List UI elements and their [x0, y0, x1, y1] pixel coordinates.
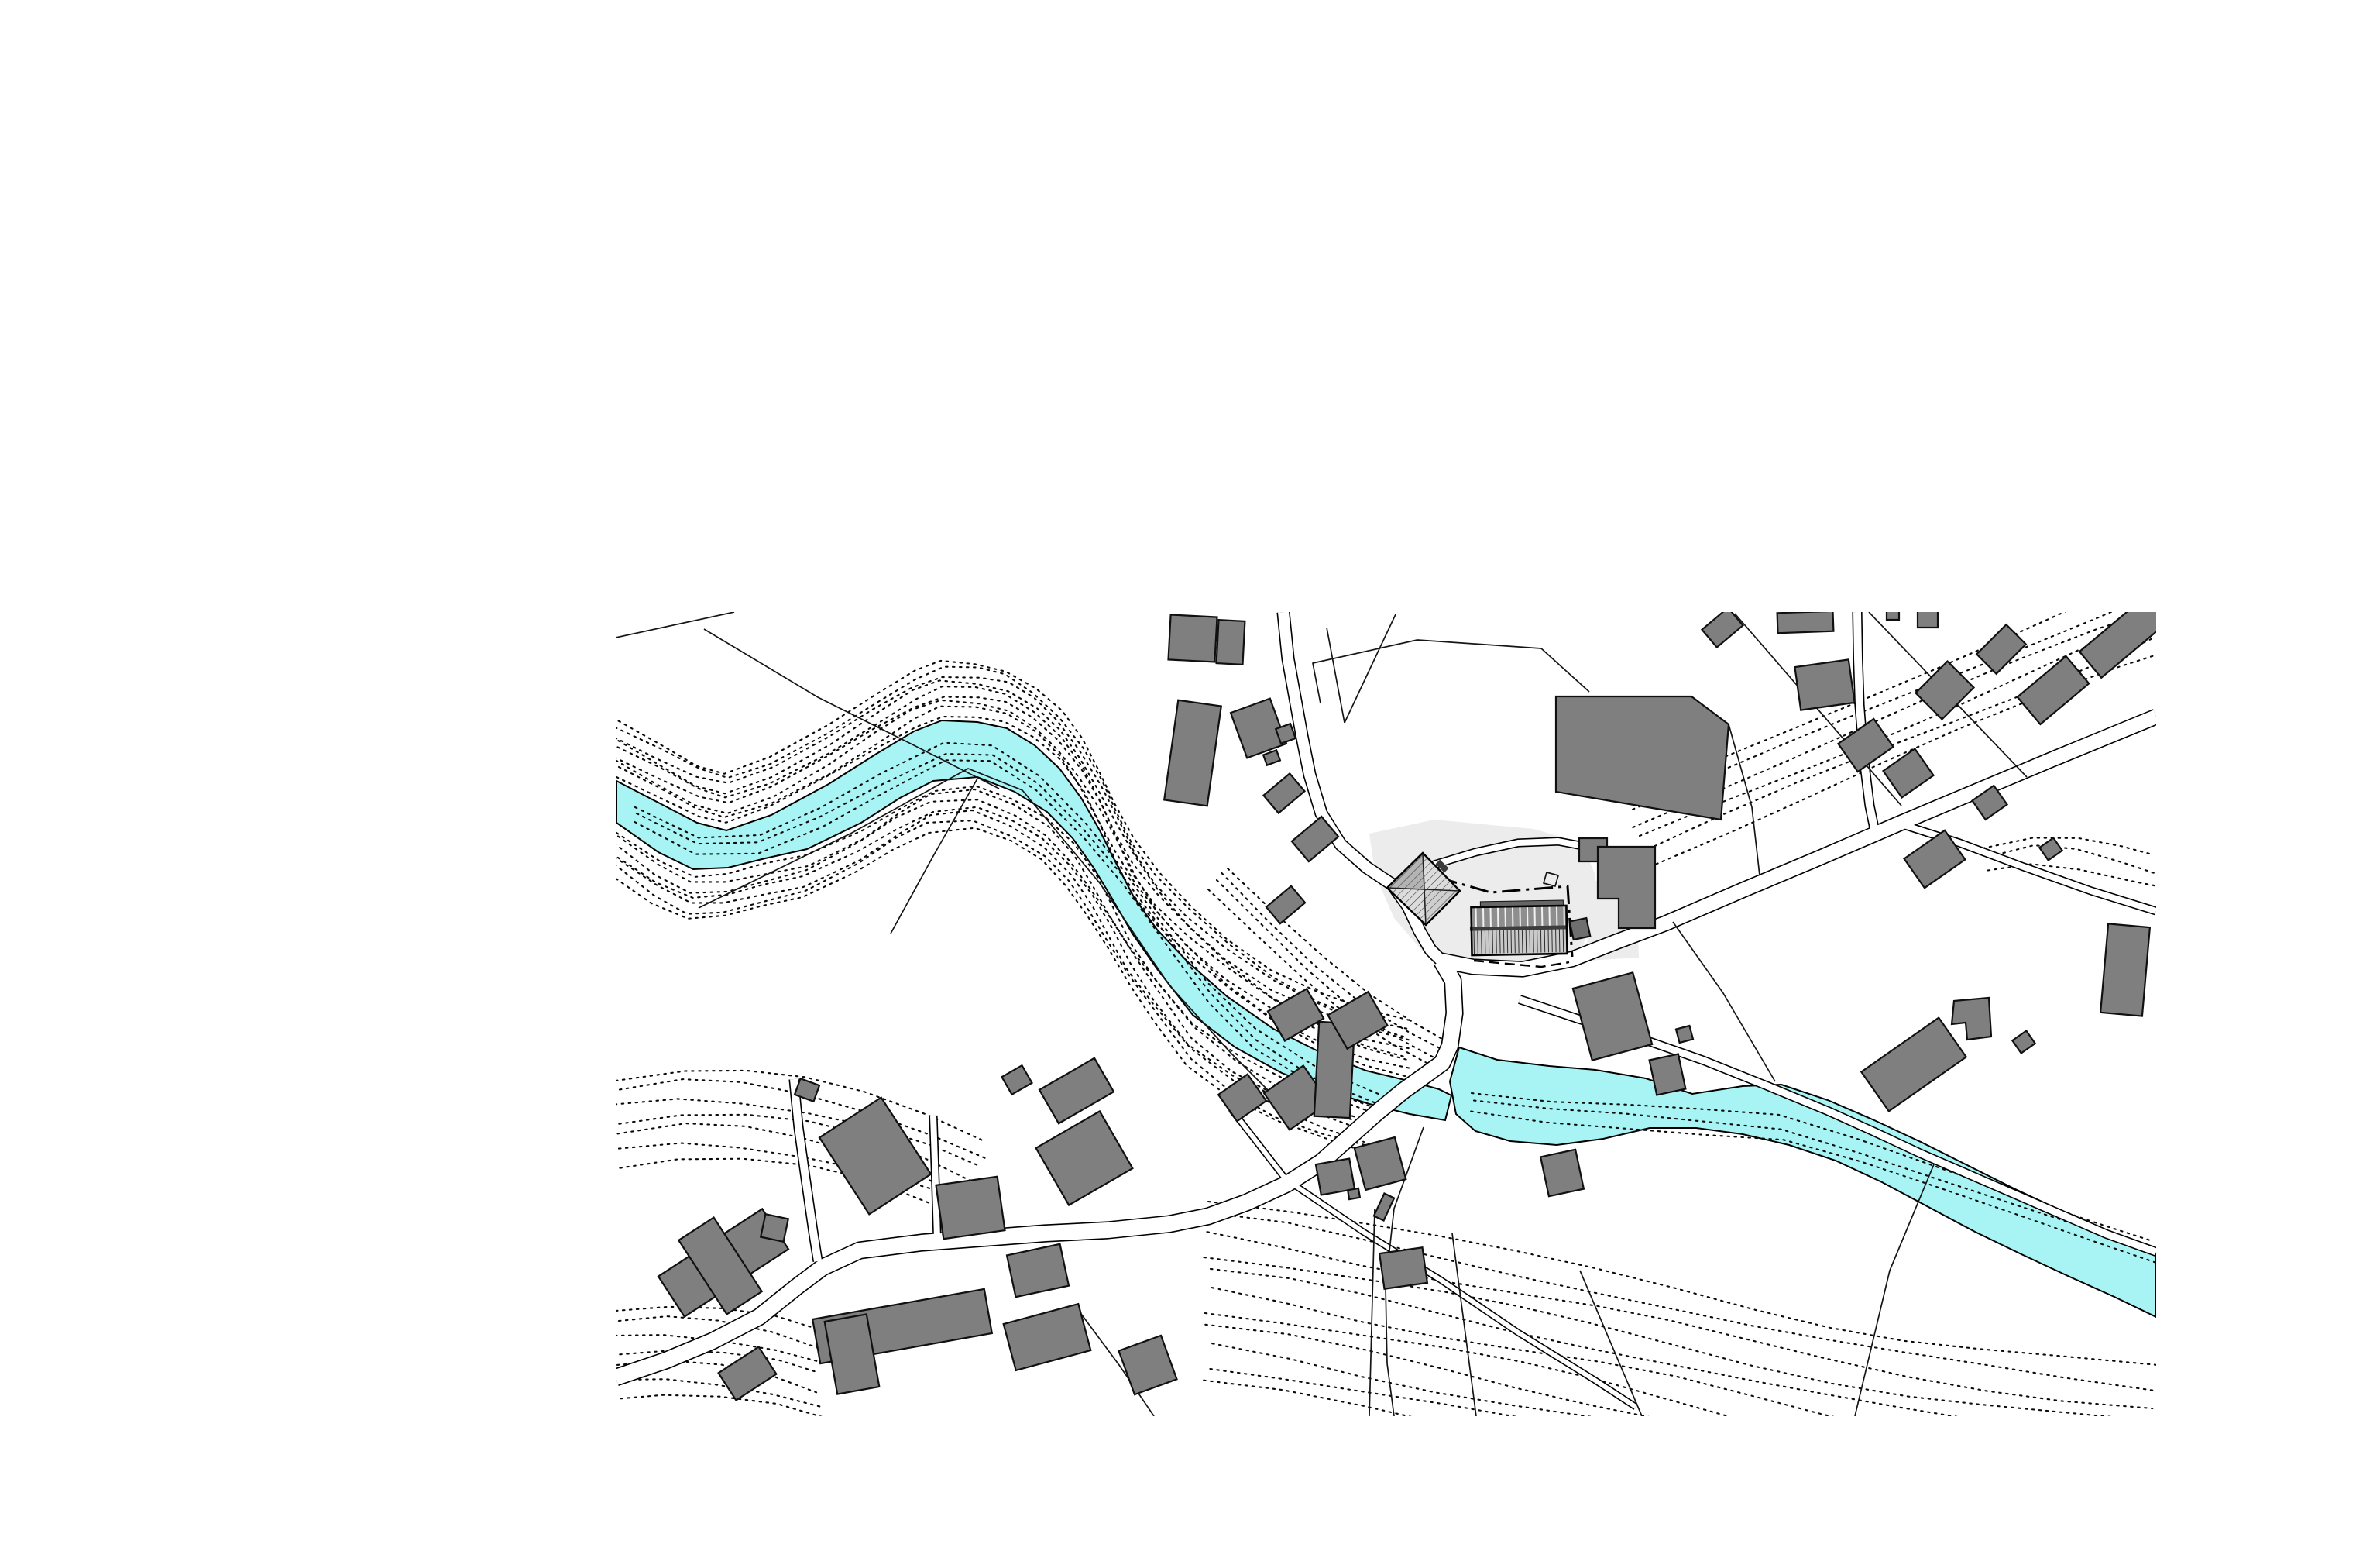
building-footprint [1952, 998, 1991, 1040]
building-footprint [1355, 1137, 1406, 1190]
contour-line [1983, 838, 2152, 855]
building-footprint [1702, 607, 1743, 647]
building-footprint [1164, 700, 1221, 806]
building-footprint [1887, 610, 1899, 620]
parcel-boundary-line [1735, 614, 1901, 806]
site-plan-map [0, 0, 2380, 1568]
building-footprint [1266, 886, 1305, 923]
building-footprint [1039, 1058, 1114, 1123]
building-footprint [719, 1347, 777, 1401]
roof-rib [1522, 930, 1523, 953]
building-footprint [1374, 1194, 1394, 1221]
project-building-ribbed-roof [1469, 900, 1568, 955]
building-footprint [2100, 923, 2150, 1016]
parcel-boundary-line [1313, 640, 1589, 703]
building-footprint [1264, 773, 1305, 813]
contour-line [1212, 1288, 2158, 1464]
building-footprint [1861, 1018, 1966, 1112]
building-footprint [1263, 750, 1280, 765]
roof-rib [1530, 930, 1530, 953]
building-footprint [1918, 610, 1938, 628]
building-footprint [1217, 620, 1245, 665]
roof-rib [1489, 930, 1489, 954]
contour-line [1205, 1313, 2152, 1477]
parcel-boundary-line [1452, 1233, 1476, 1416]
roof-rib [1548, 929, 1549, 952]
roof-rib [1519, 930, 1520, 953]
roof-rib [1511, 930, 1512, 953]
building-footprint [1884, 749, 1934, 798]
roof-rib [1533, 930, 1534, 953]
parcel-boundary-line [1345, 614, 1396, 723]
building-footprint [2039, 838, 2062, 861]
building-footprint [1004, 1304, 1091, 1370]
building-footprint [1573, 972, 1652, 1060]
roof-rib [1507, 930, 1508, 953]
roof-rib [1552, 929, 1553, 952]
building-footprint [1007, 1244, 1069, 1297]
contour-line [1205, 1325, 2156, 1503]
building-footprint [1169, 615, 1217, 662]
roof-rib [1485, 930, 1485, 954]
building-footprint [1976, 624, 2026, 674]
building-footprint [1540, 1150, 1584, 1196]
parcel-boundary-line [1729, 724, 1760, 875]
roof-rib [1540, 930, 1541, 953]
building-footprint [1838, 719, 1893, 772]
church-lane [794, 1079, 818, 1261]
building-footprint [1002, 1065, 1032, 1095]
building-footprint [1570, 918, 1591, 940]
contour-line [1212, 1343, 2161, 1520]
roof-rib [1537, 930, 1538, 953]
parcel-boundary-line [616, 612, 734, 638]
roof-rib [1478, 930, 1478, 954]
contour-line [1204, 1257, 2153, 1421]
roof-rib [1492, 930, 1493, 954]
roof-rib [1500, 930, 1501, 953]
parcel-boundary-line [1327, 628, 1345, 723]
building-footprint [1794, 659, 1854, 710]
roof-rib [1474, 930, 1475, 954]
building-footprint [1348, 1188, 1360, 1199]
building-footprint [936, 1177, 1005, 1239]
roof-rib [1496, 930, 1497, 954]
village-lane [933, 1116, 937, 1238]
roof-rib [1526, 930, 1527, 953]
building-footprint [1036, 1111, 1133, 1205]
building-footprint [1676, 1026, 1693, 1043]
building-footprint [1650, 1054, 1686, 1095]
roof-rib [1559, 929, 1560, 952]
building-footprint [2018, 656, 2089, 724]
roof-rib [1515, 930, 1516, 953]
map-content [610, 583, 2168, 1559]
roof-rib [1563, 929, 1564, 952]
contour-line [1211, 1269, 2161, 1447]
roof-rib [1544, 929, 1545, 952]
building-footprint [1777, 611, 1834, 633]
contour-line [1210, 1369, 2155, 1532]
roof-rib [1556, 929, 1557, 952]
building-footprint [1119, 1336, 1177, 1394]
building-footprint [761, 1214, 788, 1242]
document-page [0, 0, 2380, 1568]
contour-line [1207, 1232, 2153, 1408]
contour-line [1204, 1381, 2152, 1559]
roof-rib [1482, 930, 1482, 954]
roof-rib [1503, 930, 1504, 953]
building-footprint [2012, 1031, 2035, 1054]
building-footprint [1556, 696, 1729, 820]
building-footprint [1379, 1247, 1427, 1288]
contour-line [616, 1307, 816, 1329]
roof-lower-band [1472, 927, 1568, 955]
roof-upper-band [1471, 906, 1566, 929]
building-layer [658, 596, 2168, 1400]
